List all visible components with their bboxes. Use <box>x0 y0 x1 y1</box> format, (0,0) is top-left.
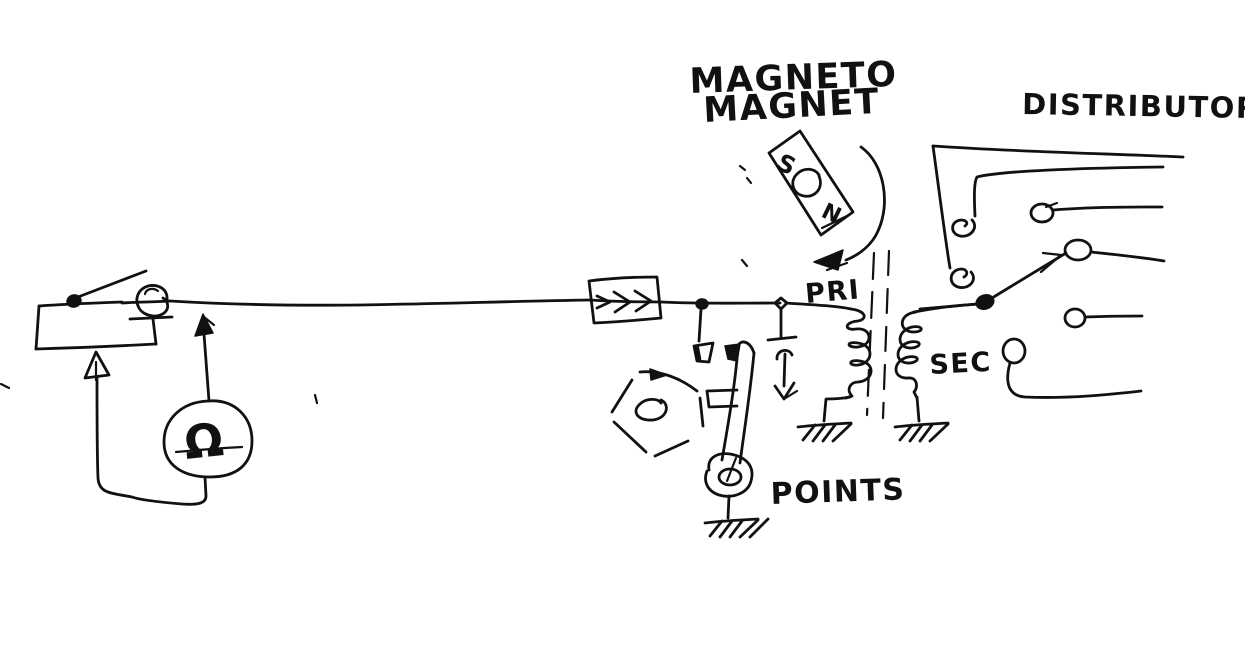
core-lamination <box>883 251 889 418</box>
secondary-label: SEC <box>929 347 993 381</box>
magnet-pole-north: N <box>817 199 846 230</box>
main-wire <box>122 300 851 309</box>
cap-terminal <box>1065 309 1085 327</box>
stray-mark <box>740 166 745 170</box>
magnet-shaft <box>793 169 821 196</box>
condenser <box>768 298 797 399</box>
distributor-label: DISTRIBUTOR <box>1022 87 1245 125</box>
points-label: POINTS <box>770 472 906 512</box>
switch-lever <box>78 271 146 297</box>
magnet-pole-south: S <box>772 148 801 181</box>
secondary-winding <box>896 312 921 398</box>
rotation-arrow <box>846 147 884 260</box>
ignition-schematic-sketch: Ω POINTS <box>0 0 1245 663</box>
kill-switch <box>36 271 156 349</box>
cam <box>612 369 703 456</box>
sketch-canvas: Ω POINTS <box>0 0 1245 663</box>
cap-terminal <box>1003 339 1025 363</box>
ohmmeter: Ω <box>85 314 252 504</box>
points-arm <box>738 342 754 353</box>
cap-terminal <box>951 269 973 288</box>
primary-label: PRI <box>804 274 862 310</box>
magneto-magnet: MAGNETO MAGNET S N <box>689 55 898 270</box>
cam-rotation-arrow <box>650 369 667 380</box>
cap-terminal <box>1065 240 1091 260</box>
cap-terminal <box>953 220 975 236</box>
magneto-label-line2: MAGNET <box>702 82 881 131</box>
junction-dot <box>696 299 708 309</box>
points-assembly: POINTS <box>694 299 906 537</box>
probe-lead <box>204 334 209 401</box>
ohm-symbol: Ω <box>182 412 228 470</box>
stray-marks <box>1 260 747 403</box>
cam-shaft <box>636 399 666 420</box>
stray-mark <box>747 178 751 183</box>
rotor-center <box>974 292 996 311</box>
ignition-coil: PRI SEC <box>798 251 992 441</box>
